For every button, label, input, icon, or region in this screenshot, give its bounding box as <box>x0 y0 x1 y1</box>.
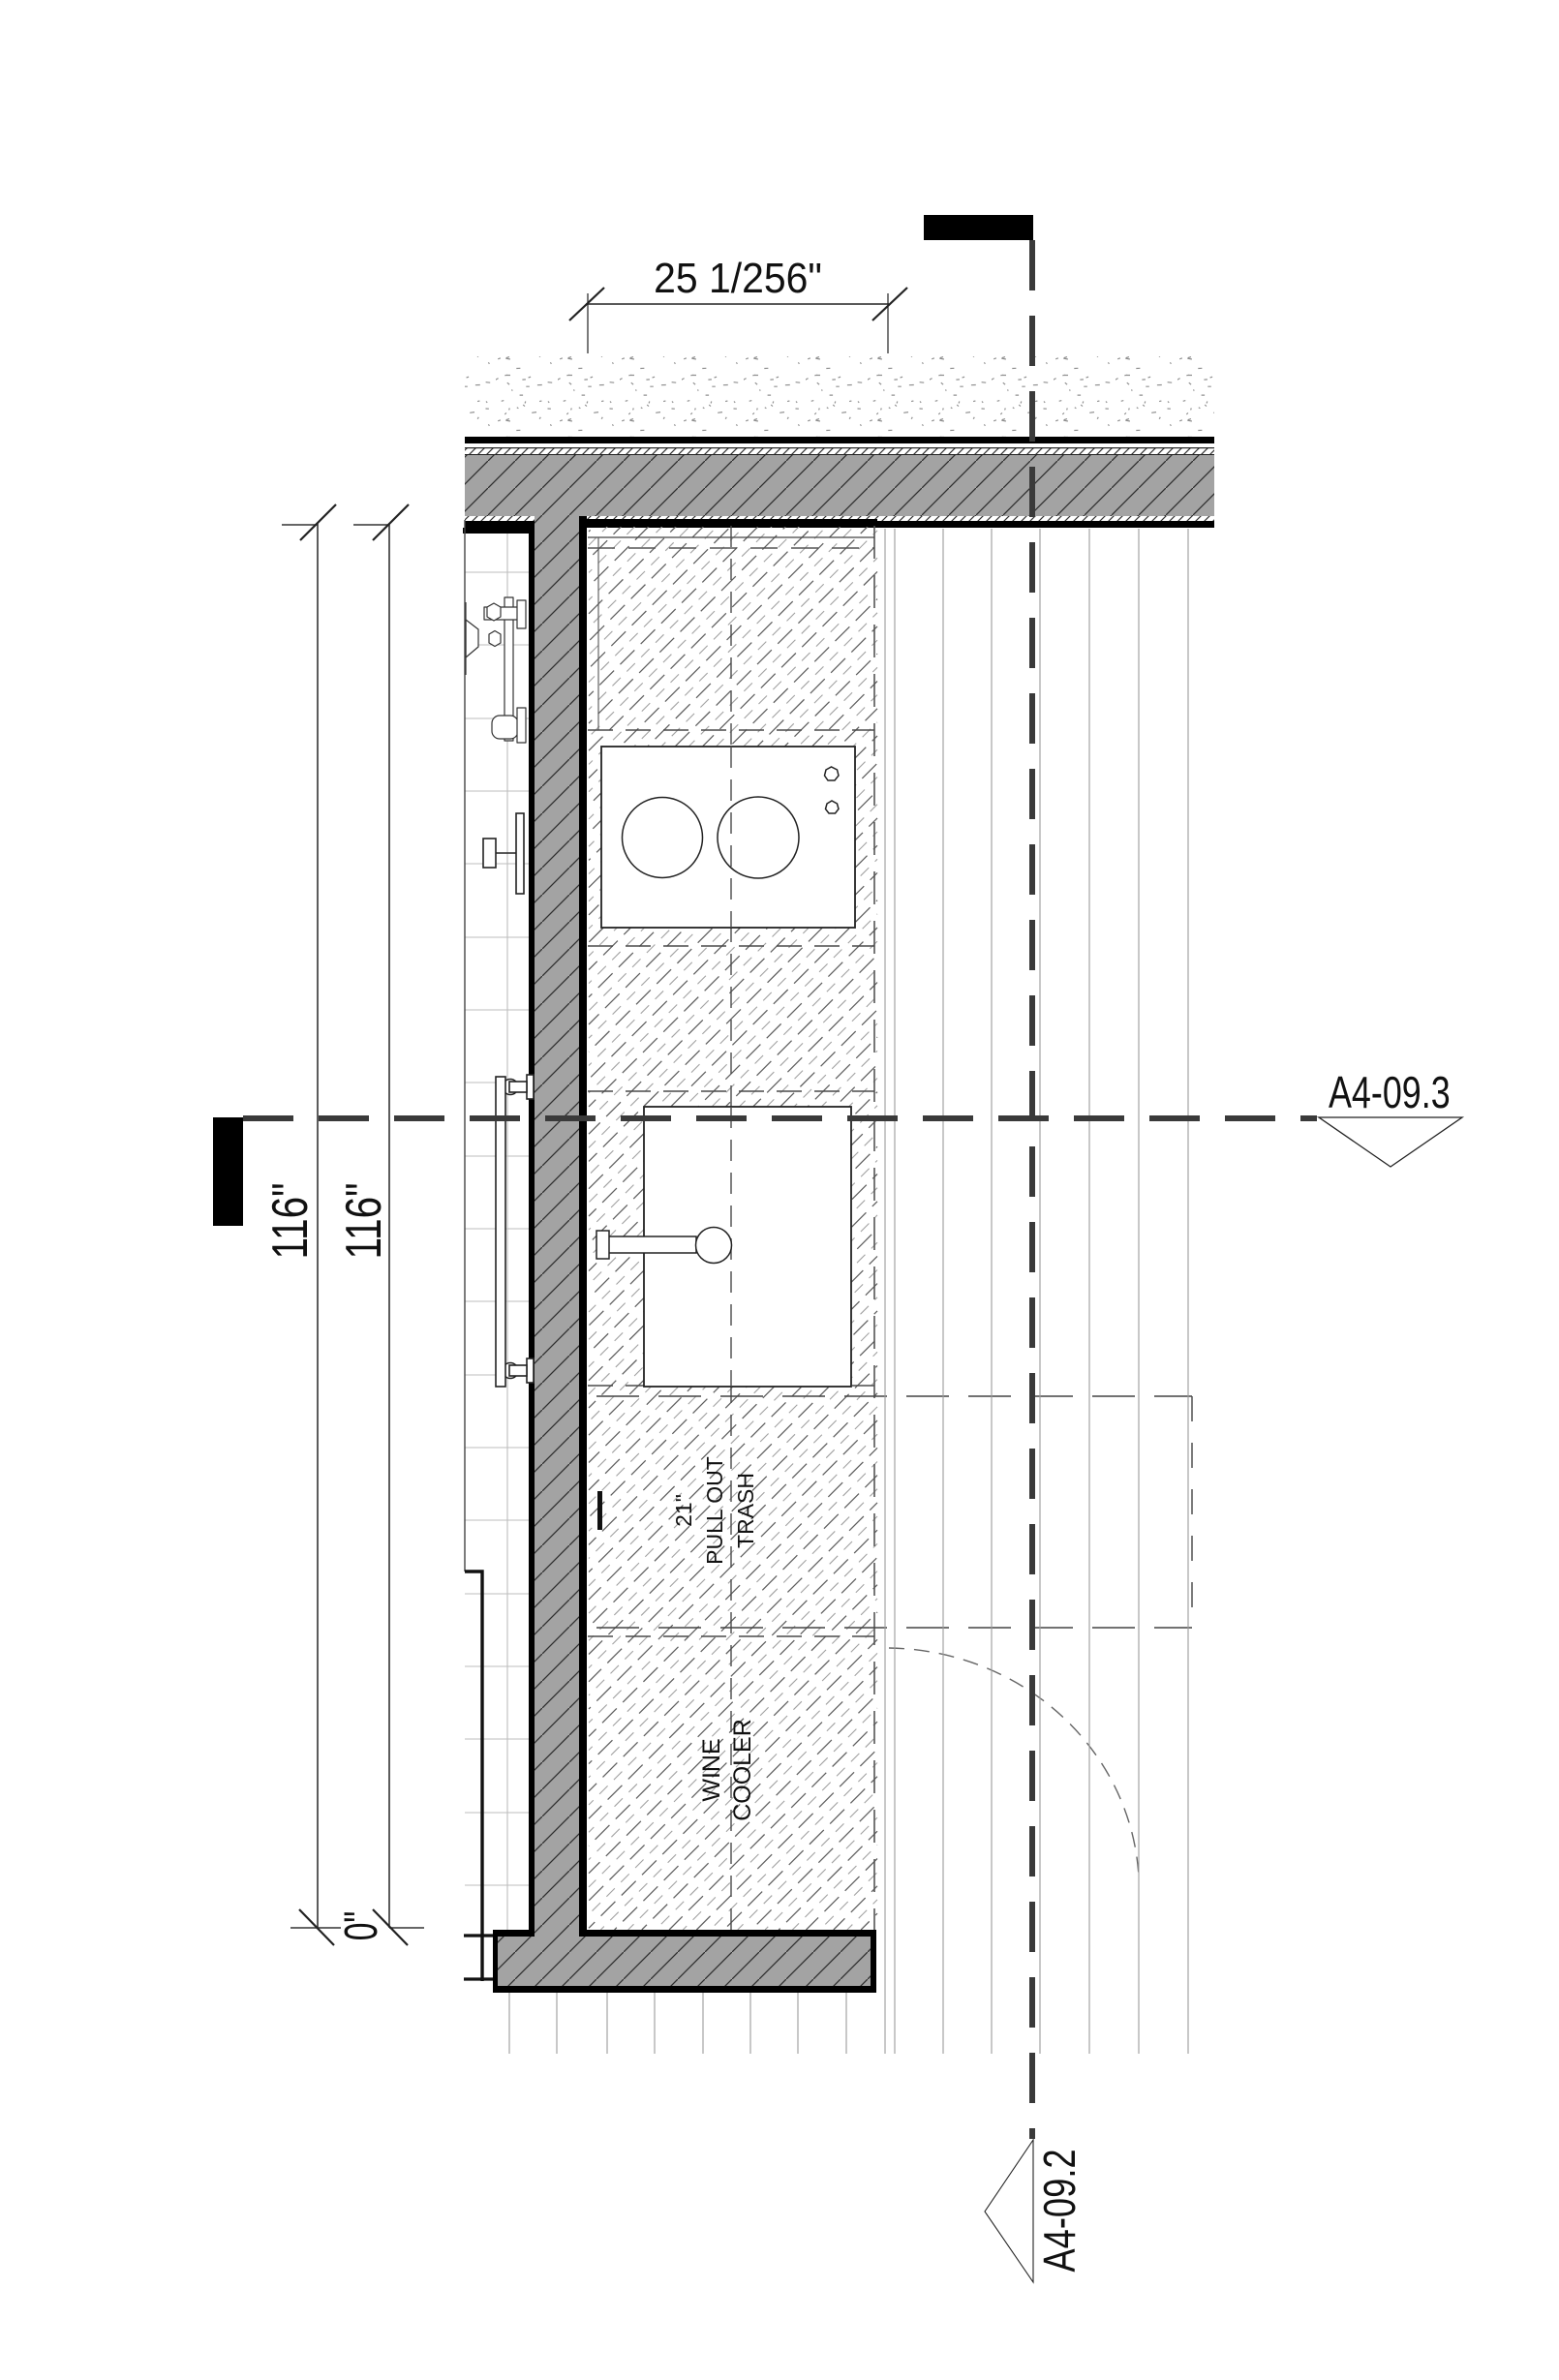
svg-text:21": 21" <box>671 1494 696 1527</box>
svg-text:COOLER: COOLER <box>729 1719 756 1821</box>
svg-text:PULL OUT: PULL OUT <box>702 1456 727 1565</box>
svg-text:TRASH: TRASH <box>733 1473 758 1548</box>
svg-text:0": 0" <box>334 1911 386 1941</box>
svg-text:25 1/256": 25 1/256" <box>654 256 822 303</box>
svg-text:116": 116" <box>335 1182 391 1259</box>
svg-text:A4-09.3: A4-09.3 <box>1329 1068 1451 1117</box>
svg-text:A4-09.2: A4-09.2 <box>1034 2149 1085 2272</box>
svg-text:WINE: WINE <box>698 1738 725 1801</box>
svg-text:116": 116" <box>261 1182 318 1259</box>
